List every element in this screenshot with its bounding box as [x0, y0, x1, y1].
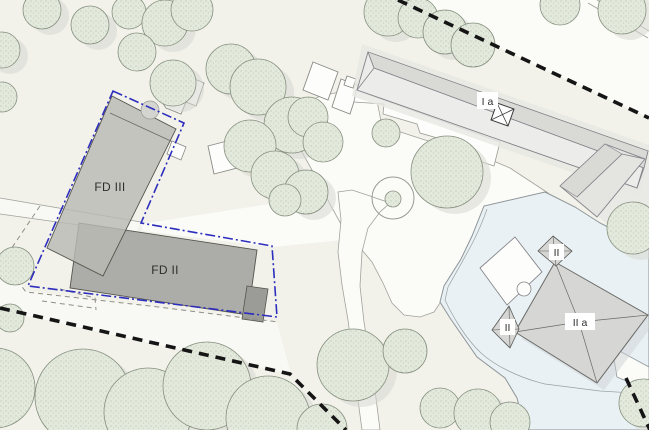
small-gray-tree — [141, 101, 159, 119]
building-label-ii-west: II — [505, 322, 511, 334]
site-plan: FD III FD II I a — [0, 0, 649, 430]
building-fd2-annex — [242, 286, 268, 322]
site-plan-svg: FD III FD II I a — [0, 0, 649, 430]
building-label-fd3: FD III — [94, 180, 125, 194]
annex-apse — [517, 282, 531, 296]
building-label-iia: II a — [573, 317, 588, 329]
building-label-fd2: FD II — [151, 263, 179, 277]
building-label-ia: I a — [482, 96, 494, 108]
building-label-ii-north: II — [554, 247, 560, 259]
